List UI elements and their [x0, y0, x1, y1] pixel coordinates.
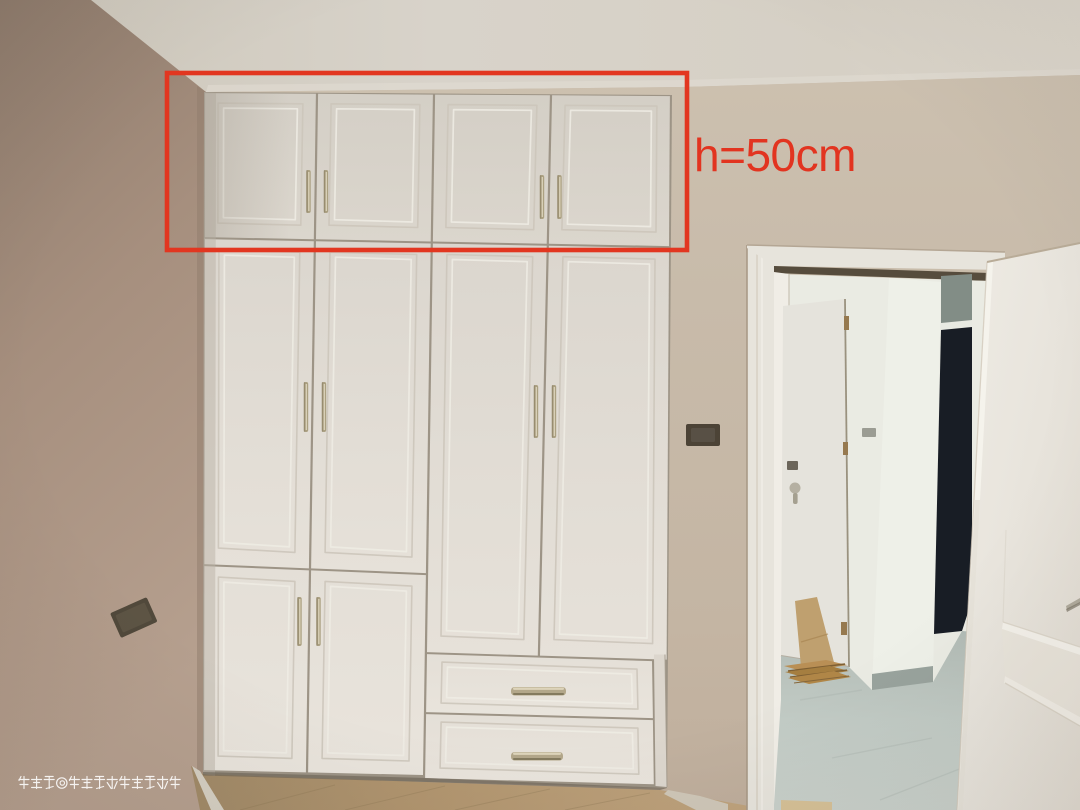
svg-text:h=50cm: h=50cm	[694, 129, 856, 181]
